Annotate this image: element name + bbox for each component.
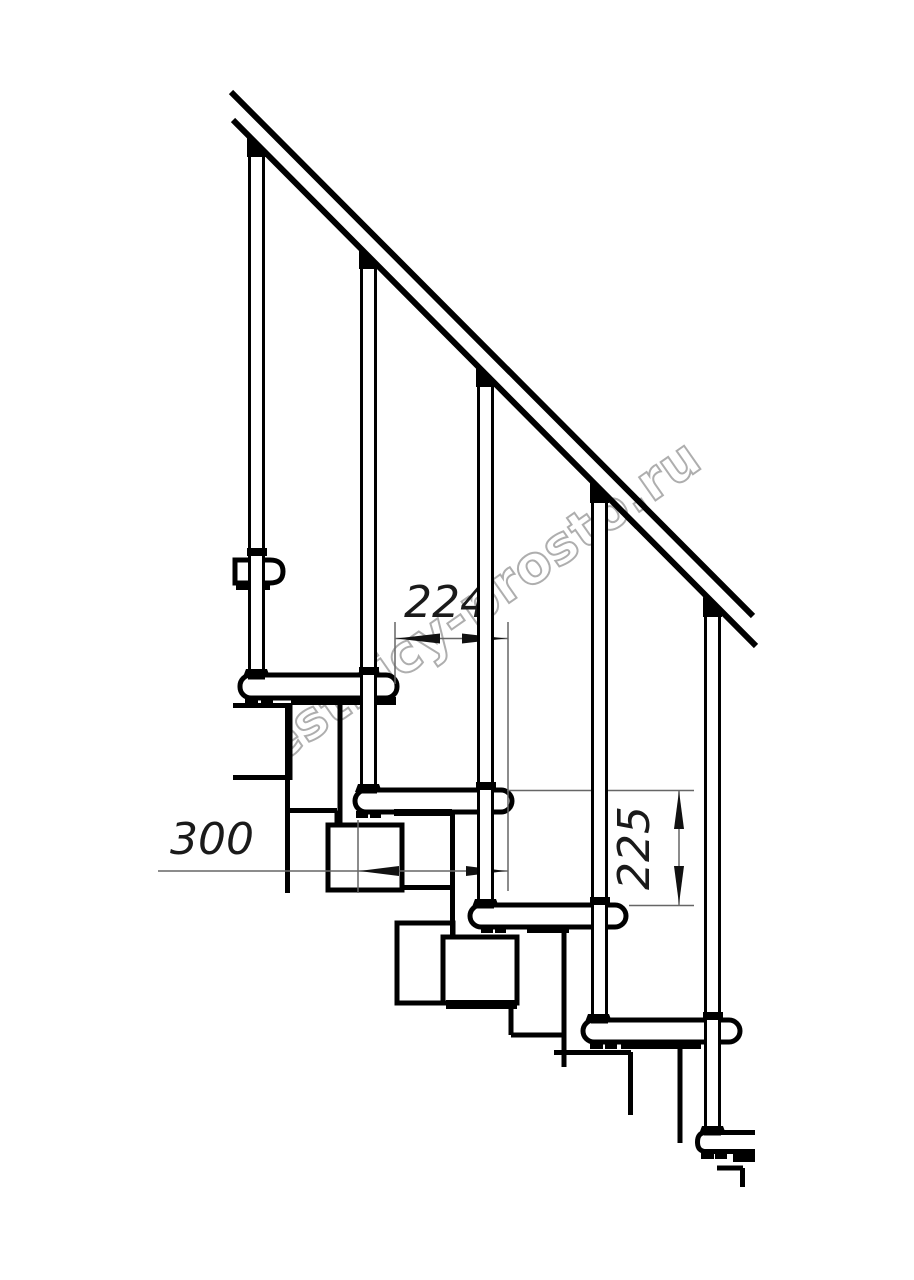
arrow-up-icon <box>674 791 684 829</box>
module-body-2 <box>443 937 517 1003</box>
staircase-technical-drawing: lestnicy-prosto.ru <box>0 0 914 1280</box>
treads <box>235 560 755 1152</box>
baluster-1 <box>250 150 264 678</box>
dim-rise-label: 225 <box>609 806 660 890</box>
baluster-4 <box>593 497 607 1022</box>
dim-going-label: 224 <box>404 577 488 628</box>
module-box-left <box>233 706 290 778</box>
arrow-down-icon <box>674 866 684 904</box>
drawing-canvas: lestnicy-prosto.ru <box>0 0 914 1280</box>
baluster-3 <box>479 380 493 907</box>
dim-depth-label: 300 <box>170 814 254 865</box>
baluster-2 <box>362 262 376 792</box>
module-body-1 <box>328 825 402 890</box>
baluster-5 <box>706 612 720 1134</box>
